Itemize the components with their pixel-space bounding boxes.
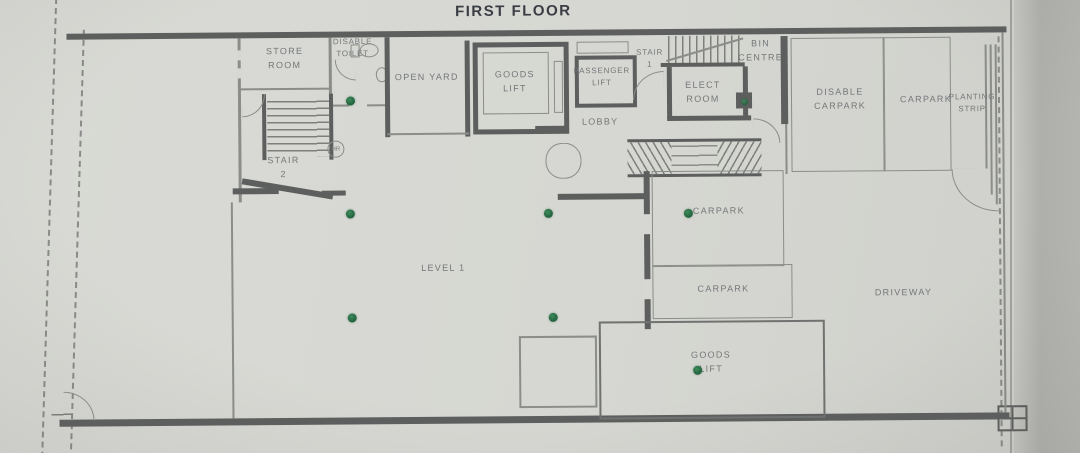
- wall-opening: [643, 279, 651, 299]
- hose-reel-symbol: HR: [327, 141, 344, 158]
- window-opening: [237, 68, 242, 78]
- room-label-store-room: STORE ROOM: [266, 45, 304, 73]
- wall-segment: [558, 193, 646, 200]
- partition-line: [331, 104, 349, 106]
- room-label-driveway: DRIVEWAY: [875, 286, 933, 300]
- room-label-bin-centre: BIN CENTRE: [738, 37, 783, 65]
- plan-title: FIRST FLOOR: [455, 2, 572, 20]
- marker-dot: [348, 313, 357, 322]
- floorplan-drawing: FIRST FLOOR: [0, 0, 1080, 453]
- room-label-planting-strip: PLANTING STRIP: [949, 91, 996, 116]
- wall-segment: [667, 67, 672, 119]
- room-label-elect-room: ELECT ROOM: [685, 79, 721, 107]
- wall-segment: [322, 191, 346, 196]
- lift-overrun-outline: [577, 41, 629, 53]
- room-label-stair-2: STAIR 2: [267, 154, 300, 182]
- marker-dot: [741, 98, 748, 105]
- wall-segment: [465, 41, 471, 137]
- ramp-hatch: [627, 142, 671, 174]
- site-edge-line: [1001, 32, 1006, 412]
- door-leaf-arc: [545, 161, 581, 179]
- room-label-goods-lift: GOODS LIFT: [495, 68, 535, 96]
- wall-segment: [667, 115, 751, 121]
- marker-dot: [684, 209, 693, 218]
- wall-segment: [535, 126, 565, 132]
- ramp-hatch: [717, 141, 761, 173]
- marker-dot: [346, 96, 355, 105]
- room-label-passenger-lift: PASSENGER LIFT: [574, 65, 631, 90]
- boundary-dashed-line: [69, 30, 84, 453]
- wall-segment: [661, 62, 745, 67]
- partition-line: [387, 133, 469, 136]
- door-arc: [633, 71, 664, 100]
- boundary-dashed-line: [41, 0, 57, 453]
- wall-segment: [60, 412, 1010, 426]
- room-label-carpark-lower: CARPARK: [697, 282, 749, 296]
- room-label-level-1: LEVEL 1: [421, 262, 465, 276]
- room-label-stair-1: STAIR 1: [636, 47, 663, 72]
- wall-segment: [385, 37, 391, 137]
- driveway-curve: [952, 168, 999, 211]
- wall-segment: [644, 171, 651, 329]
- room-label-carpark-mid: CARPARK: [693, 204, 745, 218]
- door-leaf-arc: [545, 143, 581, 161]
- door-arc: [335, 59, 356, 80]
- partition-line: [785, 124, 787, 174]
- stair-treads: [267, 97, 329, 157]
- marker-dot: [549, 313, 558, 322]
- partition-line: [239, 88, 331, 91]
- room-label-disable-toilet: DISABLE TOILET: [333, 36, 373, 61]
- room-label-lobby: LOBBY: [582, 115, 619, 129]
- wall-segment: [238, 38, 242, 202]
- marker-dot: [693, 366, 702, 375]
- wall-section-hatch: [51, 412, 71, 421]
- wall-segment: [231, 202, 235, 418]
- room-label-open-yard: OPEN YARD: [395, 71, 459, 85]
- ramp-lines: [671, 142, 717, 174]
- marker-dot: [346, 209, 355, 218]
- room-label-disable-carpark: DISABLE CARPARK: [814, 85, 866, 113]
- wall-opening: [643, 214, 651, 234]
- room-label-carpark-right: CARPARK: [900, 93, 952, 107]
- parking-bay-outline: [652, 170, 785, 267]
- lift-door-panel: [554, 61, 563, 113]
- marker-dot: [544, 209, 553, 218]
- floorplan-photo: FIRST FLOOR: [0, 0, 1080, 453]
- window-opening: [237, 50, 242, 60]
- unlabeled-room-outline: [519, 336, 598, 409]
- column-grid-symbol: [997, 405, 1027, 431]
